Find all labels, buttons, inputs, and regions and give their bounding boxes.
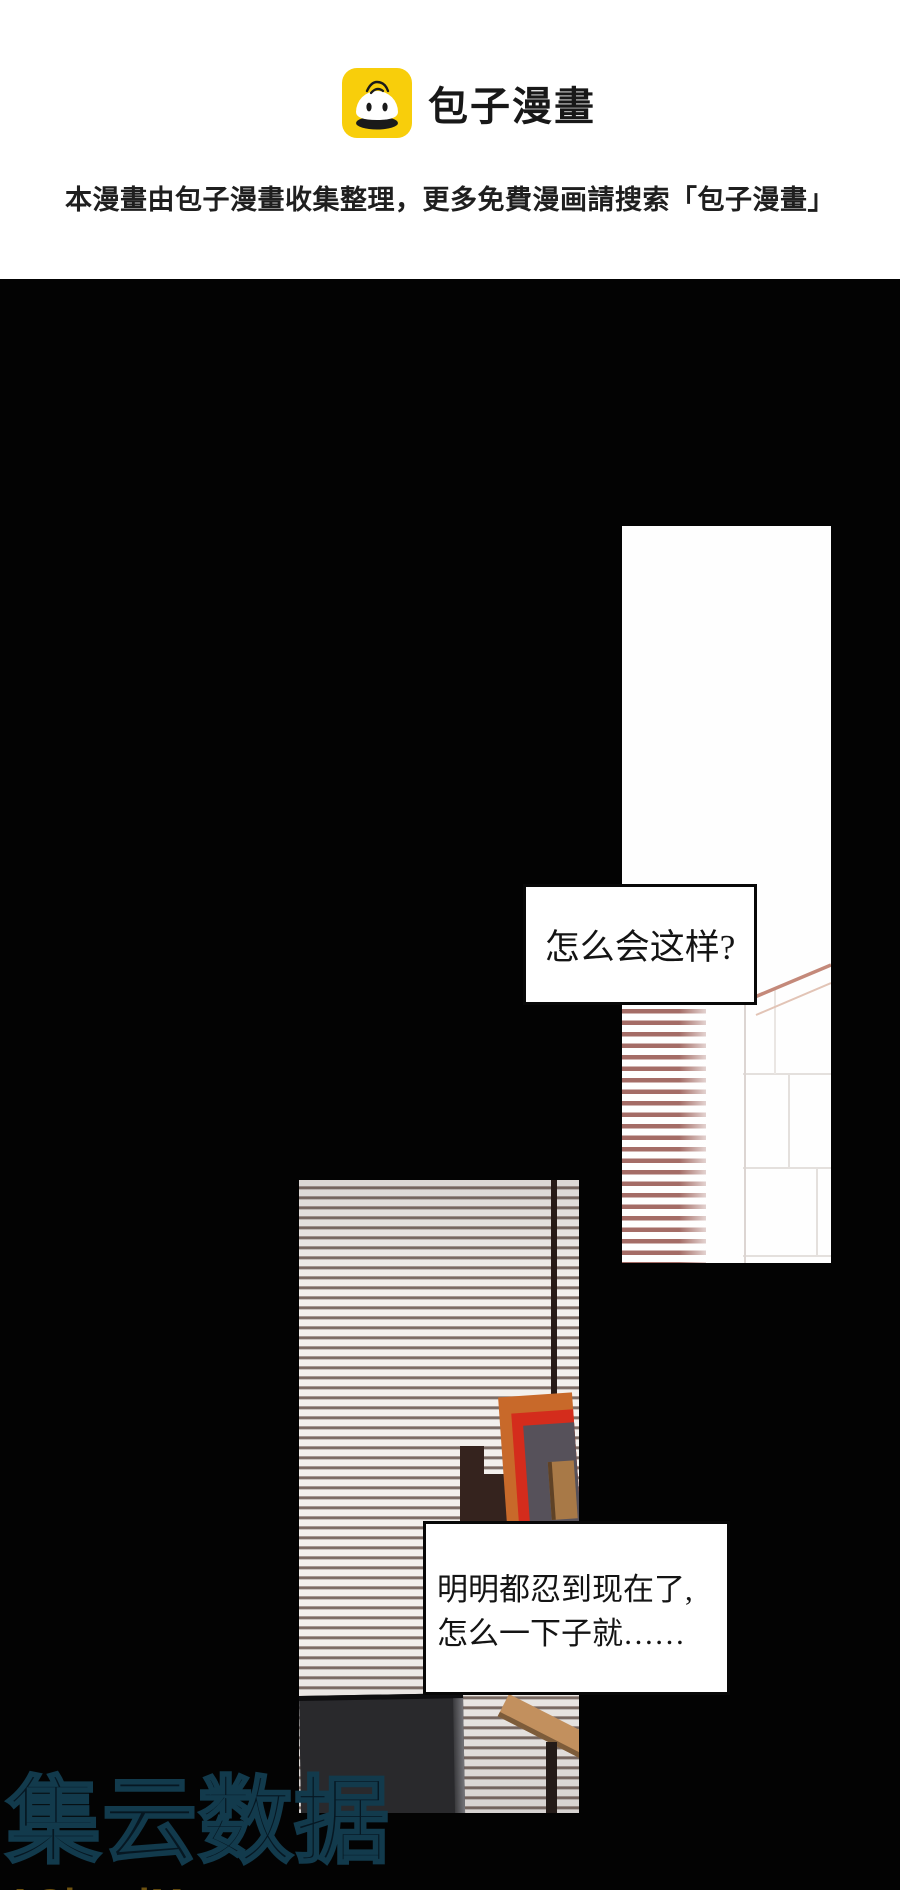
baozi-logo-icon	[342, 68, 412, 138]
wooden-shelf-edge	[498, 1694, 579, 1758]
collection-notice: 本漫畫由包子漫畫收集整理，更多免費漫画請搜索「包子漫畫」	[0, 178, 900, 217]
picture-frame-inner-border	[511, 1409, 579, 1526]
manga-page: 包子漫畫 本漫畫由包子漫畫收集整理，更多免費漫画請搜索「包子漫畫」	[0, 0, 900, 1890]
picture-frame-interior	[523, 1422, 579, 1525]
brand: 包子漫畫	[342, 68, 596, 138]
site-header: 包子漫畫 本漫畫由包子漫畫收集整理，更多免費漫画請搜索「包子漫畫」	[0, 0, 900, 279]
baozi-bun-icon	[342, 68, 412, 138]
watermark-name: 集云数据	[6, 1745, 390, 1882]
brand-name: 包子漫畫	[428, 74, 596, 132]
watermark: 集云数据 ACloudMerge.com	[6, 1745, 390, 1890]
monitor-side-edge	[453, 1698, 465, 1813]
shelf-post	[546, 1742, 557, 1813]
blind-cord	[551, 1180, 557, 1398]
dark-furniture-silhouette	[460, 1446, 484, 1524]
comic-area: 怎么会这样? 明明都忍到现在了, 怎么一下子就…… 集云数据 ACloudMer…	[0, 279, 900, 1890]
picture-frame	[498, 1392, 579, 1527]
speech-bubble-2: 明明都忍到现在了, 怎么一下子就……	[423, 1521, 730, 1695]
panel-dark-room	[299, 1180, 579, 1813]
speech-text-2-line1: 明明都忍到现在了,	[437, 1568, 727, 1612]
speech-text-1: 怎么会这样?	[545, 919, 736, 970]
framed-artwork	[548, 1460, 578, 1520]
watermark-site: ACloudMerge.com	[6, 1882, 390, 1890]
speech-text-2-line2: 怎么一下子就……	[437, 1612, 727, 1656]
speech-bubble-1: 怎么会这样?	[523, 884, 757, 1005]
